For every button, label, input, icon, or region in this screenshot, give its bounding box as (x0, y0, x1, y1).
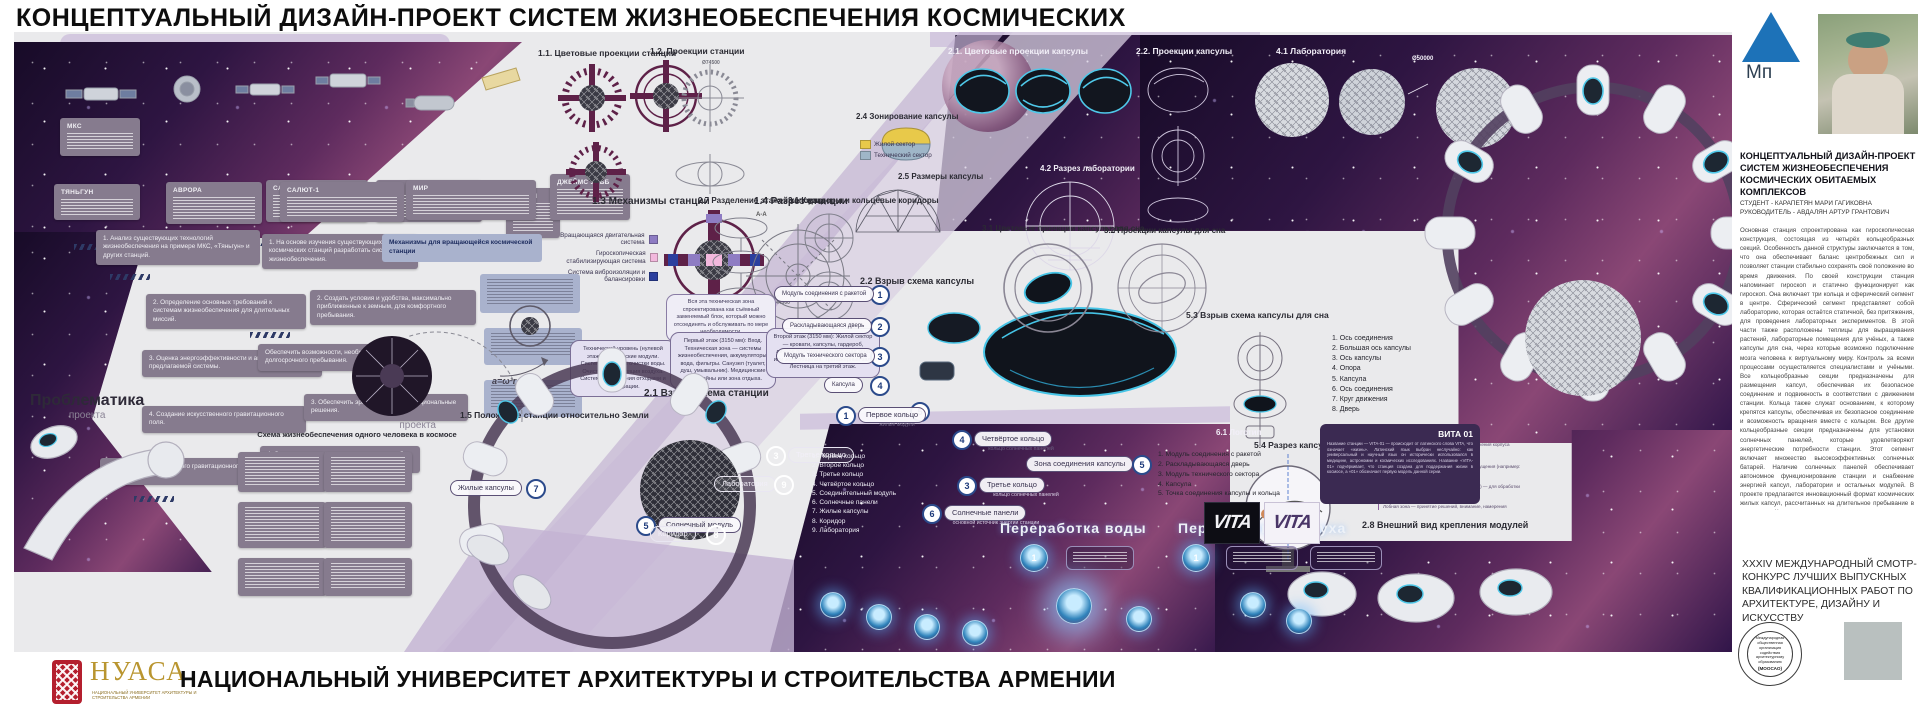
life-scheme-box (238, 558, 326, 596)
legend-label-vibration-isolation: Система виброизоляции и балансировки (554, 269, 645, 283)
zone-residential-label: Жилой сектор (874, 141, 915, 148)
vita-logo-text: VITA (1212, 512, 1253, 534)
capsule-line-projections (1136, 60, 1244, 228)
satellite-card-avrora: АВРОРА (166, 182, 262, 224)
callout-zone-5: 5 (1132, 455, 1152, 475)
flow-node-sun (1056, 588, 1092, 624)
photo-jacket (1832, 74, 1904, 134)
callout-ring-7: 7 (526, 479, 546, 499)
caption-lines (67, 133, 133, 151)
life-scheme-box (324, 502, 412, 548)
callout-ring-3-label: Третье кольцо (979, 477, 1045, 493)
callout-ring-1: 1 (836, 406, 856, 426)
callout-ring-1-sub: жилые модули (862, 422, 932, 428)
vita-logo-text: VITA (1272, 512, 1313, 534)
section-label-2-5: 2.5 Размеры капсулы (898, 172, 983, 181)
caption-lines (287, 197, 397, 217)
brain-label-frontal: Лобная зона — принятие решений, внимание… (1378, 504, 1521, 510)
legend-label-rotating-engine: Вращающаяся двигательная система (554, 232, 645, 246)
robot-arm-render (14, 388, 234, 578)
mechanisms-note-box: Механизмы для вращающейся космической ст… (382, 234, 542, 262)
flow-node (1126, 606, 1152, 632)
section-label-2-1-color: 2.1. Цветовые проекции капсулы (948, 46, 1088, 56)
capsule-parts-list: 1. Модуль соединения с ракетой2. Расклад… (1158, 450, 1280, 499)
air-flow-node-1: 1 (1182, 544, 1210, 572)
sidebar-description: Основная станция спроектирована как гиро… (1740, 226, 1914, 510)
callout-ring-8: 8 (706, 525, 726, 545)
section-label-1-3: 1.3 Механизмы станции (592, 196, 710, 207)
flow-node (1240, 592, 1266, 618)
footer-bar: НУАСА НАЦИОНАЛЬНЫЙ УНИВЕРСИТЕТ АРХИТЕКТУ… (0, 652, 1738, 715)
laboratory-spheres (1244, 54, 1434, 144)
callout-ring-3: 3 (957, 476, 977, 496)
competition-text: XXXIV МЕЖДУНАРОДНЫЙ СМОТР-КОНКУРС ЛУЧШИХ… (1742, 558, 1918, 625)
problem-item-2: 2. Определение основных требований к сис… (146, 294, 306, 329)
history-card-salyut: САЛЮТ-1 (280, 182, 404, 222)
station-line-projections (654, 58, 774, 208)
geodesic-dome-drawing (852, 182, 944, 236)
air-flow-box-2 (1310, 546, 1382, 570)
zone-technical-label: Технический сектор (874, 152, 932, 159)
water-flow-box (1066, 546, 1134, 570)
moocao-stamp: Международная общественная организация с… (1738, 622, 1802, 686)
sleep-parts-list: 1. Ось соединения2. Большая ось капсулы3… (1332, 334, 1411, 415)
triangle-logo-icon (1742, 12, 1800, 62)
caption-lines (413, 195, 529, 215)
callout-ring-4-sub: кольцо солнечных панелей (978, 446, 1064, 452)
sleep-capsule-color-projection (996, 236, 1100, 340)
problem-item-1: 1. Анализ существующих технологий жизнео… (96, 230, 260, 265)
legend-label-gyro-stabilizer: Гироскопическая стабилизирующая система (554, 250, 646, 264)
capsule-part-pill-4: Капсула (824, 377, 863, 393)
caption-lines (61, 199, 133, 215)
stamp-text: Международная общественная организация с… (1750, 636, 1790, 664)
corridor-rings-diagram (796, 210, 862, 328)
section-label-1-2: 1.2. Проекции станции (650, 46, 744, 56)
capsule-part-pill-1: Модуль соединения с ракетой (774, 286, 874, 302)
flow-node (820, 592, 846, 618)
sidebar-student: СТУДЕНТ - КАРАПЕТЯН МАРИ ГАГИКОВНА (1740, 200, 1916, 207)
dim-station-diameter: Ø74500 (702, 60, 720, 66)
sidebar: Мп КОНЦЕПТУАЛЬНЫЙ ДИЗАЙН-ПРОЕКТ СИСТЕМ Ж… (1738, 0, 1920, 715)
sidebar-advisor: РУКОВОДИТЕЛЬ - АВДАЛЯН АРТУР ГРАНТОВИЧ (1740, 209, 1916, 216)
photo-hair (1846, 32, 1890, 48)
capsule-color-projections (950, 58, 1136, 124)
callout-ring-7-label: Жилые капсулы (450, 480, 522, 496)
nuaca-acronym: НУАСА (90, 656, 188, 687)
section-label-5-3: 5.3 Взрыв схема капсулы для сна (1186, 310, 1329, 320)
poster-canvas: МКС ТЯНЬГУН АВРОРА САЛЮТ-1 МИР ХАББЛ ДЖЕ… (14, 32, 1732, 652)
water-flow-node-1: 1 (1020, 544, 1048, 572)
section-label-2-2-proj: 2.2. Проекции капсулы (1136, 46, 1232, 56)
capsule-part-pill-2: Раскладывающаяся дверь (782, 318, 872, 334)
satellite-card-tiangong: ТЯНЬГУН (54, 184, 140, 220)
callout-ring-4: 4 (952, 430, 972, 450)
caption-lines (173, 197, 255, 219)
life-scheme-box (324, 558, 412, 596)
satellite-name: МКС (67, 123, 133, 131)
poster-title: КОНЦЕПТУАЛЬНЫЙ ДИЗАЙН-ПРОЕКТ СИСТЕМ ЖИЗН… (16, 4, 1206, 32)
callout-ring-9: 9 (774, 475, 794, 495)
callout-ring-9-label: Лаборатория (714, 476, 776, 492)
callout-zone-5-label: Зона соединения капсулы (1026, 456, 1133, 472)
section-label-4-2: 4.2 Разрез лаборатории (1040, 164, 1135, 173)
hatch-decoration (250, 332, 290, 338)
flow-node (1286, 608, 1312, 634)
history-name: САЛЮТ-1 (287, 187, 397, 195)
callout-ring-6-label: Солнечные панели (944, 505, 1026, 521)
satellite-name: ТЯНЬГУН (61, 189, 133, 197)
flow-node (914, 614, 940, 640)
callout-ring-1-label: Первое кольцо (858, 407, 926, 423)
legend-chip-purple (649, 235, 658, 244)
emblem-pattern (56, 664, 78, 700)
mechanisms-legend: Вращающаяся двигательная система Гироско… (554, 232, 658, 283)
gray-square-placeholder (1844, 622, 1902, 680)
section-label-2-4: 2.4 Зонирование капсулы (856, 112, 958, 121)
water-processing-title: Переработка воды (1000, 520, 1147, 536)
student-photo (1818, 14, 1918, 134)
life-scheme-box (324, 452, 412, 492)
callout-ring-3-sub: кольцо солнечных панелей (983, 492, 1069, 498)
zoning-legend: Жилой сектор Технический сектор (860, 140, 932, 160)
stamp-abbr: (МООСАО) (1758, 666, 1782, 672)
callout-ring-3b-label: Третье кольцо (788, 447, 854, 463)
callout-ring-8-label: Коридор (650, 526, 696, 542)
callout-ring-3b: 3 (766, 446, 786, 466)
ring-parts-list: 1. Первое кольцо2. Второе кольцо3. Треть… (812, 452, 896, 535)
vita-logo-light: VITA (1264, 502, 1320, 544)
flow-node (866, 604, 892, 630)
callout-capsule-4: 4 (870, 376, 890, 396)
life-scheme-box (238, 452, 326, 492)
logo-text: Мп (1746, 62, 1772, 84)
history-name: МИР (413, 185, 529, 193)
life-scheme-box (238, 502, 326, 548)
station-hero-render (1408, 38, 1732, 458)
vita-logo-dark: VITA (1204, 502, 1260, 544)
section-label-2-8: 2.8 Внешний вид крепления модулей (1362, 520, 1528, 530)
history-card-mir: МИР (406, 180, 536, 220)
capsule-part-pill-3: Модуль технического сектора (776, 348, 875, 364)
callout-ring-4-label: Четвёртое кольцо (974, 431, 1052, 447)
air-flow-box-1 (1226, 546, 1298, 570)
university-name: НАЦИОНАЛЬНЫЙ УНИВЕРСИТЕТ АРХИТЕКТУРЫ И С… (180, 666, 1116, 693)
sidebar-project-title: КОНЦЕПТУАЛЬНЫЙ ДИЗАЙН-ПРОЕКТ СИСТЕМ ЖИЗН… (1740, 150, 1916, 198)
callout-ring-6: 6 (922, 504, 942, 524)
section-label-3-2-sleep: 3.2 Проекции капсулы для сна (1104, 226, 1225, 235)
section-label-3-1-corridors: 3.1 Коридоры и кольцевые коридоры (788, 196, 939, 205)
life-scheme-title: Схема жизнеобеспечения одного человека в… (252, 430, 462, 439)
legend-chip-pink (650, 253, 658, 262)
callout-capsule-2: 2 (870, 317, 890, 337)
hatch-decoration (110, 274, 150, 280)
section-label-6-1: 6.1 Логотип (1216, 428, 1261, 437)
satellite-name: АВРОРА (173, 187, 255, 195)
flow-node (962, 620, 988, 646)
poster-page: КОНЦЕПТУАЛЬНЫЙ ДИЗАЙН-ПРОЕКТ СИСТЕМ ЖИЗН… (0, 0, 1920, 715)
nuaca-emblem-icon (52, 660, 82, 704)
legend-chip-blue (649, 272, 658, 281)
satellite-card-mks: МКС (60, 118, 140, 156)
